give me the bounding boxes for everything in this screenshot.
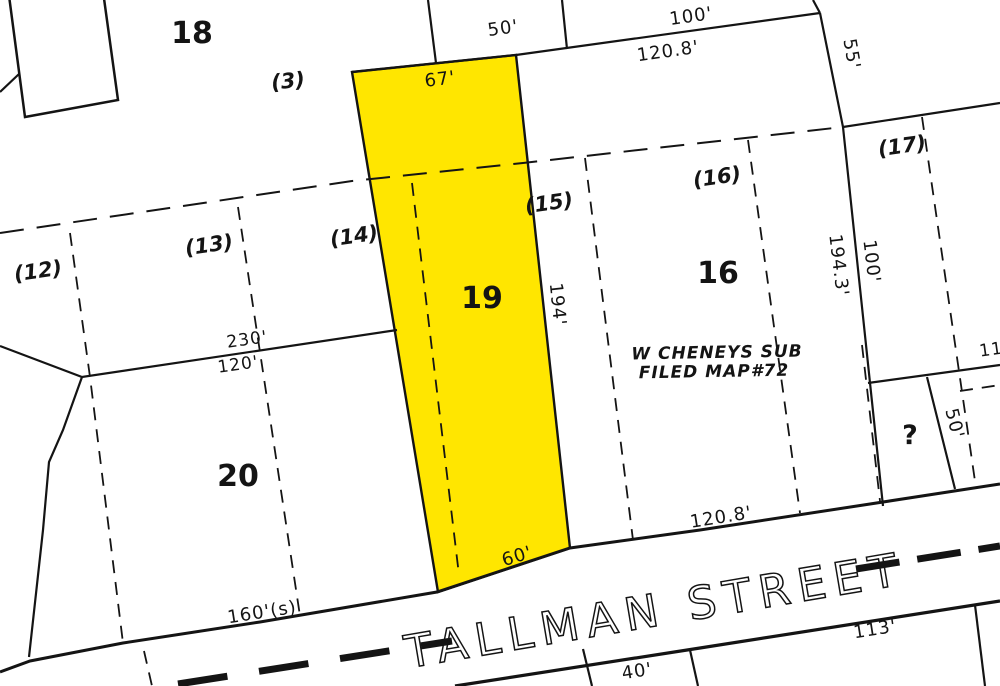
boundary-lot20-rear: [0, 330, 397, 377]
building-corner-tick: [0, 74, 19, 92]
sublot-line-unknown-west: [862, 345, 880, 501]
dim-113-south: 113': [852, 616, 898, 644]
boundary-lot20-west: [29, 377, 82, 657]
sublot16-label: (16): [691, 162, 742, 193]
sublot-line-12-13: [70, 233, 123, 643]
sublot3-label: (3): [270, 67, 306, 94]
lot20-label: 20: [217, 459, 259, 494]
dim-100-top: 100': [668, 3, 714, 30]
building-footprint: [8, 0, 118, 117]
sublot13-label: (13): [183, 230, 234, 261]
dim-120-rear: 120': [216, 352, 260, 378]
dim-230-rear: 230': [225, 327, 269, 353]
boundary-rear-right-solid: [843, 103, 1000, 127]
unknown-lot-label: ?: [902, 420, 918, 451]
dim-194-3-right: 194.3': [824, 233, 852, 298]
lot18-label: 18: [171, 16, 213, 51]
sublot-line-below-street: [144, 651, 152, 686]
sublot-line-13-14: [238, 207, 300, 616]
sublot14-label: (14): [328, 221, 379, 252]
dim-160s-front: 160'(s): [226, 597, 298, 629]
lot16-label: 16: [697, 256, 739, 291]
sublot12-label: (12): [12, 256, 63, 287]
boundary-south-lot-line-c: [975, 605, 985, 686]
dim-55-right: 55': [838, 37, 864, 71]
dim-50-top: 50': [486, 16, 519, 41]
highlighted-parcel-19[interactable]: [352, 55, 570, 592]
lot19-label: 19: [461, 281, 503, 316]
sublot-line-right-edge: [960, 385, 1000, 391]
sublot17-label: (17): [876, 131, 927, 162]
boundary-top-lot-line-b: [562, 0, 567, 49]
boundary-south-lot-line-b: [690, 650, 698, 686]
boundary-unknown-lot-north: [868, 365, 1000, 383]
sublot-line-16-east: [748, 140, 800, 513]
dim-40-south: 40': [620, 659, 654, 685]
sublot-line-15-16: [585, 158, 633, 540]
dim-11-partial: 11: [978, 338, 1000, 361]
boundary-top-right-corner: [813, 0, 820, 13]
dim-67-yellow: 67': [423, 67, 456, 92]
subdivision-note-line2: FILED MAP#72: [639, 361, 790, 384]
dim-100-right: 100': [858, 239, 884, 285]
boundary-top: [352, 13, 820, 72]
boundary-top-lot-line-a: [428, 0, 436, 63]
dim-194-yellow: 194': [545, 282, 570, 327]
dim-120-8-top: 120.8': [636, 37, 701, 66]
tax-parcel-map: 18 19 20 16 ? (3) (12) (13) (14) (15) (1…: [0, 0, 1000, 686]
